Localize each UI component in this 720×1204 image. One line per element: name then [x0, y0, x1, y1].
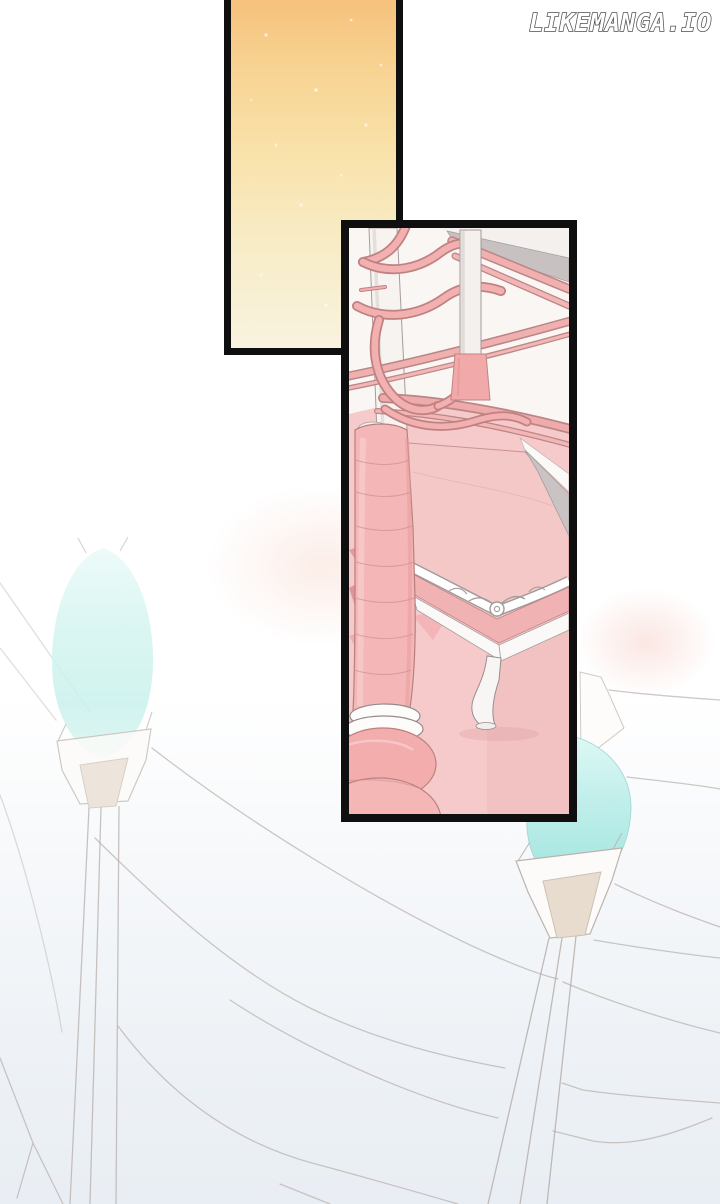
left-lamp-post: [70, 806, 119, 1204]
manga-panel-furniture: [341, 220, 577, 822]
manga-page: LIKEMANGA.IO: [0, 0, 720, 1204]
left-lamp-gem: [52, 548, 153, 757]
furniture-scene: [349, 228, 569, 814]
right-lamp-post: [488, 936, 576, 1204]
watermark-text: LIKEMANGA.IO: [529, 8, 712, 37]
site-watermark: LIKEMANGA.IO: [450, 5, 715, 47]
left-lamp: [52, 537, 153, 1204]
